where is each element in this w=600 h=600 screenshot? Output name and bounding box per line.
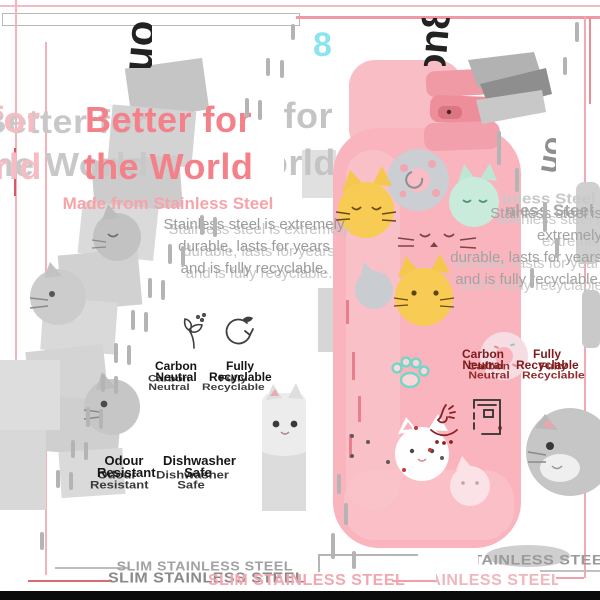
glitch-dash [497,131,501,165]
brand-logo-text: ion8 [408,18,450,66]
glitch-dash [181,246,185,266]
odour-resistant-icon [429,403,459,445]
glitch-dash [200,215,204,235]
banner-grey-fragment: SLIM STAINLESS STEEL [478,553,600,568]
headline-line2: the World [66,143,271,190]
glitch-dash [114,343,118,363]
glitch-dash [266,58,270,76]
glitch-dash [161,280,165,300]
bottom-black-bar [0,591,600,600]
glitch-dash [291,24,295,40]
feature-labels-odour: Odour Resistant Dishwasher Safe [97,455,233,479]
banner-pink-fragment: SLIM STAINLESS STEEL [436,572,558,590]
fully-recyclable-icon [220,313,254,351]
glitch-dash [543,202,547,232]
glitch-dash [168,244,172,264]
carbon-neutral-label: Carbon Neutral [153,361,199,383]
glitch-dash [344,503,348,525]
body-copy-right: Stainless steel is extremely durable, la… [432,203,600,291]
glitch-dash [144,312,148,332]
glitch-dash [530,268,534,288]
brand-logo-fragment-left: ion8 [98,22,152,68]
carbon-neutral-icon [181,312,207,350]
feature-labels-carbon: Carbon Neutral Fully Recyclable [153,361,271,383]
odour-resistant-label: Odour Resistant [97,455,151,479]
glitch-dash [258,100,262,120]
headline-ghost-mid: Better for the World [284,92,370,186]
glitch-dash [331,533,335,559]
product-infographic: ion8 8 ion8 ion8 Better for the World Be… [0,0,600,600]
glitch-dash [148,278,152,298]
banner-pink: SLIM STAINLESS STEEL [208,572,405,590]
brand-logo-text: ion8 [117,22,152,68]
right-ghost-cat [526,408,600,496]
glitch-dash [99,409,103,429]
headline-ghost-pink: Better for the World [0,96,62,190]
glitch-dash [213,217,217,237]
headline-line1: Better for [66,96,271,143]
glitch-dash [245,98,249,118]
brand-logo-fragment-right: ion8 [400,18,450,66]
dishwasher-safe-icon [470,398,504,444]
glitch-dash [280,60,284,78]
glitch-dash [131,310,135,330]
body-copy: Stainless steel is extremely durable, la… [148,214,360,280]
glitch-dash [555,238,559,258]
glitch-dash [71,440,75,458]
glitch-dash [101,374,105,392]
glitch-dash [56,470,60,488]
bottle-scene [0,0,600,600]
brand-logo-eight: 8 [313,26,332,65]
dishwasher-safe-label: Dishwasher Safe [163,455,233,479]
glitch-dash [40,532,44,550]
glitch-dash [69,472,73,490]
brand-logo-fragment-ghost: ion8 [520,138,556,172]
fully-recyclable-label: Fully Recyclable [209,361,271,383]
headline: Better for the World [66,96,271,190]
glitch-dash [114,376,118,394]
white-ghost-cat [262,383,306,511]
feature-labels-red: Carbon Neutral Fully Recyclable [460,349,578,371]
glitch-dash [86,407,90,427]
glitch-dash [352,551,356,569]
glitch-dash [563,57,567,75]
glitch-dash [84,442,88,460]
brand-logo-text: ion8 [530,138,556,172]
glitch-dash [515,168,519,192]
glitch-dash [575,22,579,42]
glitch-dash [337,474,341,494]
glitch-dash [127,345,131,365]
subheadline: Made from Stainless Steel [54,194,282,214]
